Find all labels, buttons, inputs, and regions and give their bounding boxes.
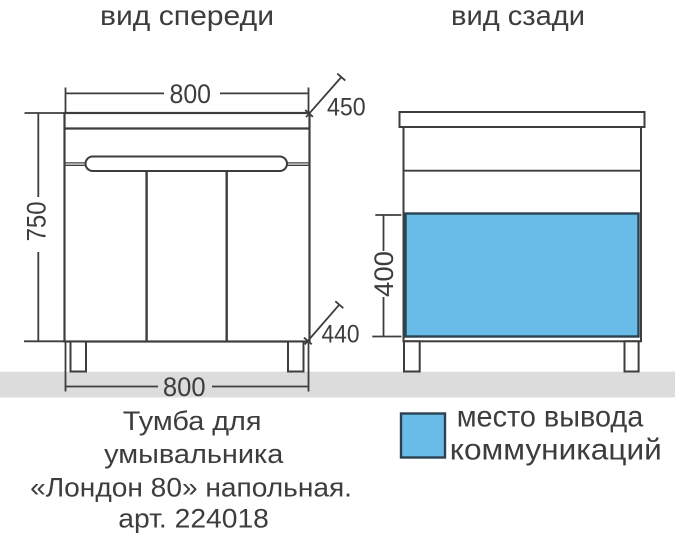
svg-text:400: 400 xyxy=(369,251,399,297)
svg-text:750: 750 xyxy=(21,201,51,241)
svg-text:800: 800 xyxy=(163,372,206,402)
svg-text:Тумба для: Тумба для xyxy=(123,406,262,436)
svg-text:коммуникаций: коммуникаций xyxy=(450,433,662,466)
svg-text:арт. 224018: арт. 224018 xyxy=(118,504,269,534)
svg-text:вид сзади: вид сзади xyxy=(451,0,585,31)
svg-text:место вывода: место вывода xyxy=(457,401,644,434)
svg-text:вид спереди: вид спереди xyxy=(100,0,274,31)
svg-text:440: 440 xyxy=(322,321,360,349)
svg-text:умывальника: умывальника xyxy=(104,439,284,469)
svg-text:450: 450 xyxy=(327,94,366,122)
svg-text:«Лондон 80» напольная.: «Лондон 80» напольная. xyxy=(30,473,352,503)
svg-text:800: 800 xyxy=(170,79,212,109)
